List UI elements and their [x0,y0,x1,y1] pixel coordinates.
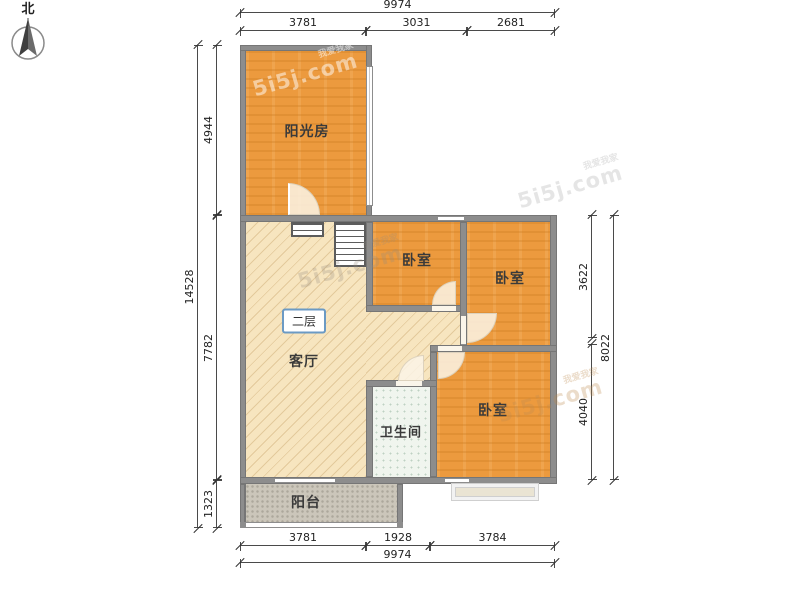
window-bottom-small [444,478,470,483]
dim-right-seg-2: 4040 [591,344,592,480]
stairs-lower-flight [291,222,324,237]
window-sunroom-east [366,66,373,206]
room-sunroom-label: 阳光房 [285,121,330,141]
dim-top-total: 9974 [240,12,555,13]
dim-bottom-seg-1: 3781 [240,545,366,546]
dim-top-seg-3: 2681 [467,30,555,31]
door-gap-bathroom [396,381,422,386]
stairs-upper-flight [334,222,366,267]
window-bedroom-top [437,216,465,221]
dim-left-total: 14528 [197,45,198,528]
door-gap-bedroom2 [461,316,466,344]
dim-bottom-seg-2: 1928 [366,545,430,546]
wall-bathroom-left [366,380,373,477]
dim-top-seg-1: 3781 [240,30,366,31]
dim-right-seg-1: 3622 [591,215,592,338]
wall-left [240,45,246,528]
room-bedroom3-label: 卧室 [478,400,508,420]
dim-right-total: 8022 [613,215,614,480]
door-gap-bedroom1 [432,306,456,311]
north-arrow-icon [6,16,50,66]
room-bedroom2-label: 卧室 [495,268,525,288]
wall-bathroom-right [430,352,437,477]
room-balcony-fill [245,484,397,522]
watermark: 我爱我家 5i5j.com [513,154,625,213]
north-indicator: 北 [6,4,50,70]
window-living-balcony [274,478,336,483]
dim-left-seg-2: 7782 [216,215,217,480]
room-bedroom1-label: 卧室 [402,250,432,270]
wall-sunroom-top [240,45,372,51]
floorplan-canvas: 阳光房 卧室 卧室 卧室 客厅 卫生间 阳台 二层 9974 3781 3031… [0,0,800,600]
wall-main-top [240,215,557,222]
room-bathroom-label: 卫生间 [380,422,422,441]
dim-bottom-seg-3: 3784 [430,545,555,546]
north-label: 北 [6,4,50,16]
room-living-label: 客厅 [289,351,319,371]
dim-left-seg-1: 4944 [216,45,217,215]
dim-bottom-total: 9974 [240,562,555,563]
dim-left-seg-3: 1323 [216,480,217,528]
window-balcony-front [240,522,403,528]
door-gap-bedroom3 [438,346,462,351]
floor-badge: 二层 [282,309,326,334]
room-balcony-label: 阳台 [291,492,321,512]
dim-top-seg-2: 3031 [366,30,467,31]
wall-living-right-upper [366,222,373,310]
bay-window [452,484,538,500]
window-corner-left [240,522,246,528]
window-corner-right [397,522,403,528]
